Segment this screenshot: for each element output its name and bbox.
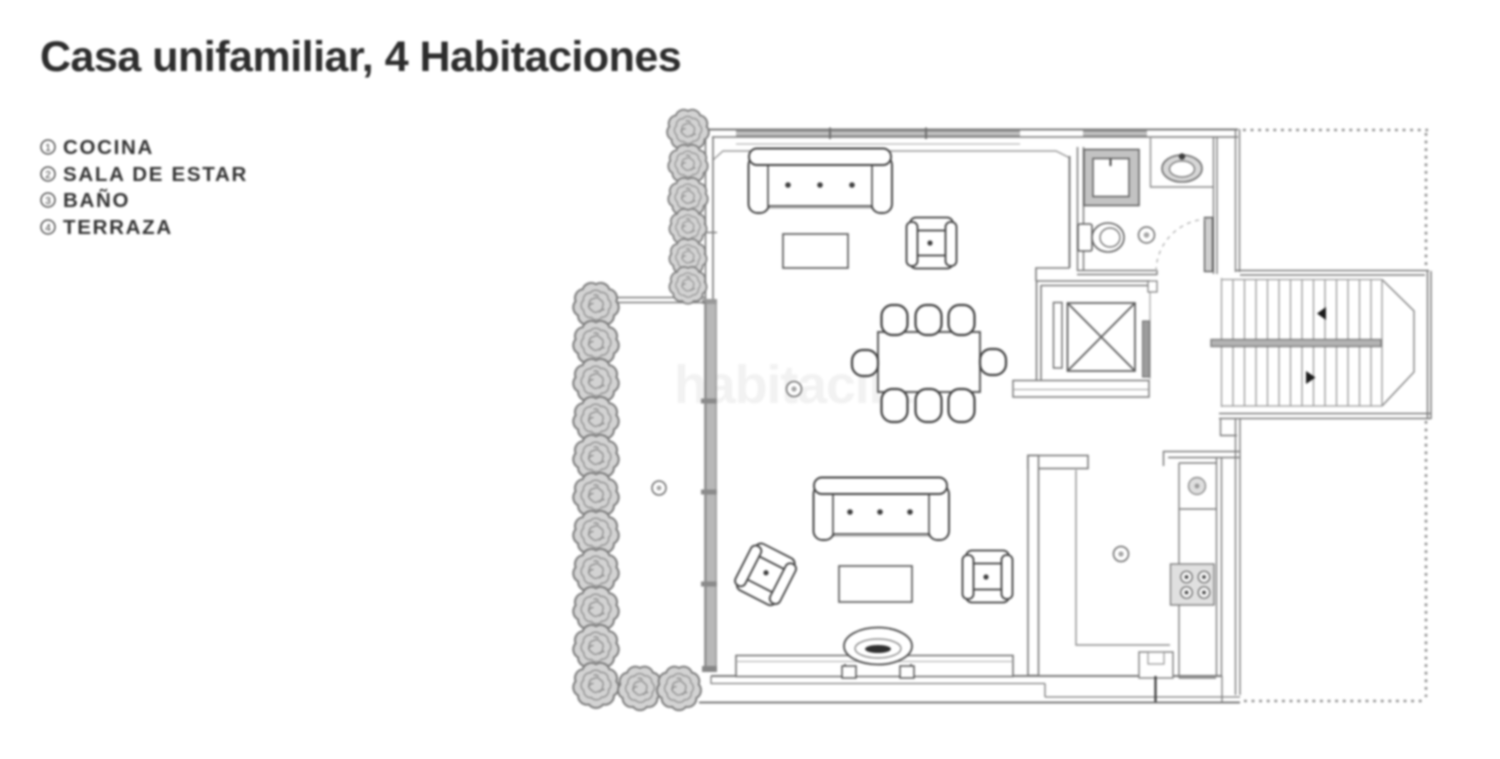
svg-text:4: 4	[45, 223, 51, 234]
svg-text:1: 1	[45, 143, 51, 154]
svg-text:TERRAZA: TERRAZA	[63, 216, 173, 239]
svg-text:COCINA: COCINA	[63, 136, 154, 159]
svg-text:BAÑO: BAÑO	[63, 189, 130, 212]
svg-text:3: 3	[45, 196, 51, 207]
svg-text:2: 2	[45, 170, 51, 181]
svg-text:SALA DE ESTAR: SALA DE ESTAR	[63, 163, 248, 186]
